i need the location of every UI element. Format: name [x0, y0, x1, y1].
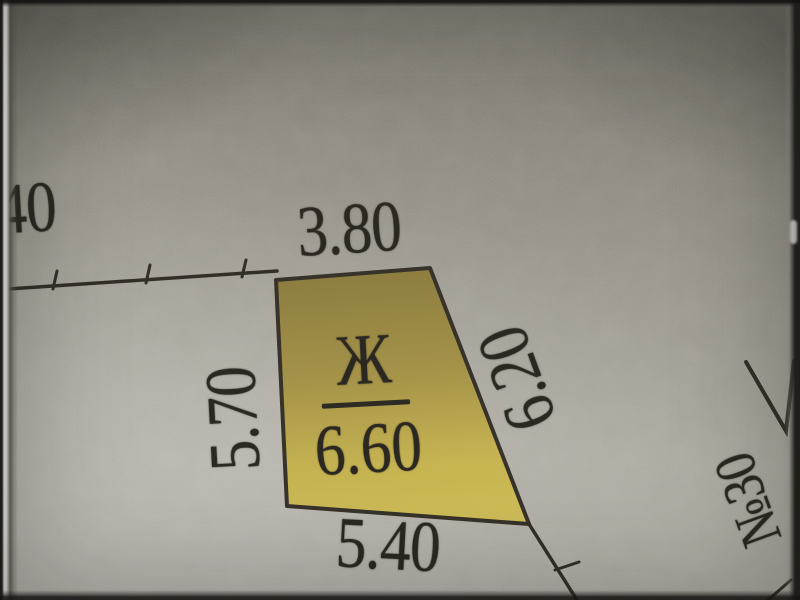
- photo-vignette: [0, 0, 800, 600]
- plan-photo: 3.80 5.70 6.20 5.40 40 №30 Ж 6.60: [0, 0, 800, 600]
